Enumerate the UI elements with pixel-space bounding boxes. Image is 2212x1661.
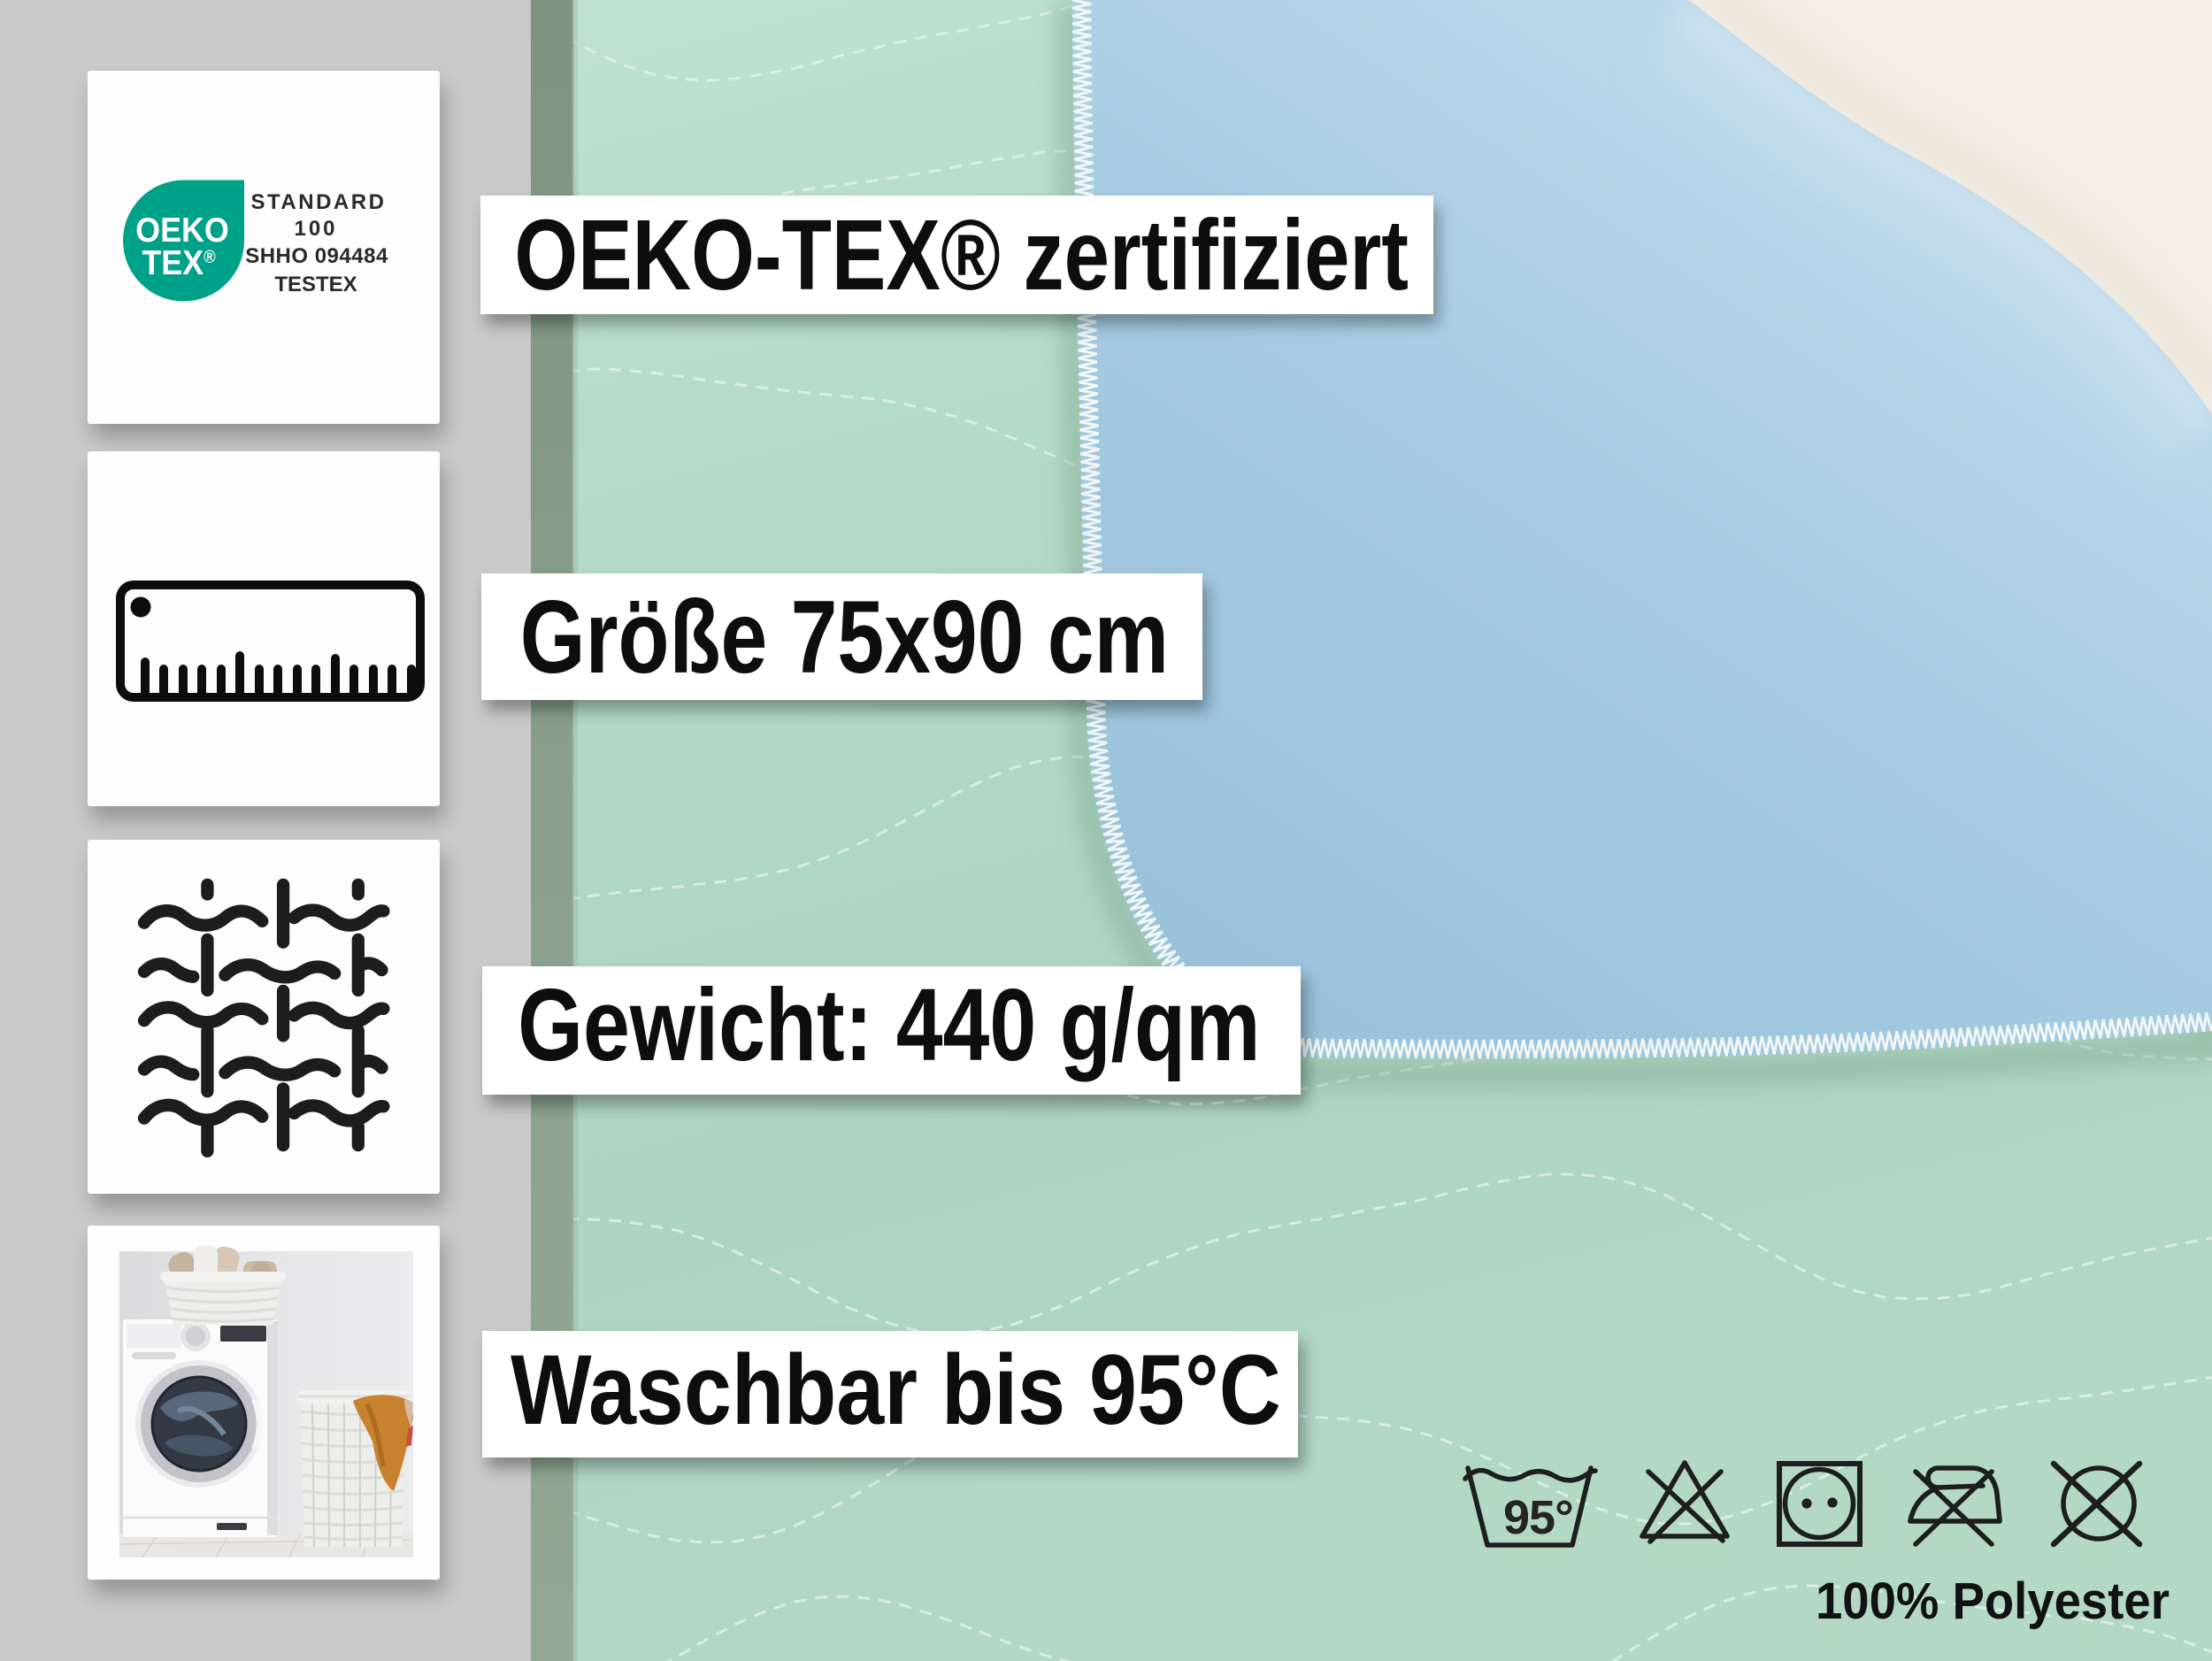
svg-text:100% Polyester: 100% Polyester	[1816, 1572, 2170, 1629]
svg-text:STANDARD: STANDARD	[251, 190, 387, 214]
svg-text:SHHO 094484: SHHO 094484	[245, 244, 388, 268]
svg-text:100: 100	[294, 217, 337, 241]
svg-text:95°: 95°	[1503, 1491, 1573, 1544]
svg-text:TESTEX: TESTEX	[274, 273, 357, 296]
